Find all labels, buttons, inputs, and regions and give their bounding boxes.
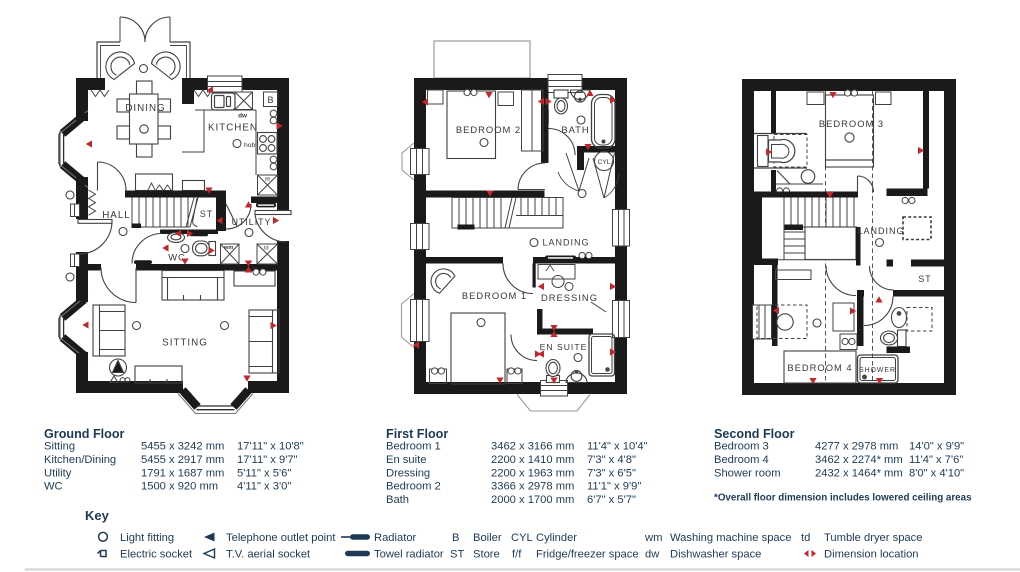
svg-text:4277 x 2978 mm: 4277 x 2978 mm [815,441,898,453]
svg-text:EN SUITE: EN SUITE [540,342,588,352]
svg-text:Bedroom 3: Bedroom 3 [714,441,769,453]
svg-text:Washing machine space: Washing machine space [670,532,791,544]
svg-text:ST: ST [450,549,464,561]
svg-text:KITCHEN: KITCHEN [208,123,258,134]
svg-text:dw: dw [645,549,660,561]
svg-text:14'0" x 9'9": 14'0" x 9'9" [909,441,964,453]
svg-text:Sitting: Sitting [44,441,75,453]
svg-text:f/f: f/f [512,549,522,561]
svg-text:En suite: En suite [386,454,426,466]
svg-text:f/f: f/f [265,177,270,183]
svg-text:td: td [264,246,269,252]
svg-text:BEDROOM 4: BEDROOM 4 [787,362,852,373]
svg-text:1791 x 1687 mm: 1791 x 1687 mm [141,467,224,479]
svg-text:Fridge/freezer space: Fridge/freezer space [536,549,639,561]
svg-text:CYL: CYL [598,159,611,166]
svg-text:7'3" x 4'8": 7'3" x 4'8" [587,454,636,466]
svg-text:SITTING: SITTING [162,338,208,349]
svg-text:Shower room: Shower room [714,467,781,479]
svg-text:Ground Floor: Ground Floor [44,427,125,441]
svg-text:ST: ST [200,209,213,219]
svg-text:B: B [452,532,459,544]
svg-text:Cylinder: Cylinder [536,532,577,544]
svg-text:BEDROOM 1: BEDROOM 1 [462,290,527,301]
svg-text:Towel radiator: Towel radiator [374,549,444,561]
svg-text:UTILITY: UTILITY [232,217,272,227]
svg-text:Dishwasher space: Dishwasher space [670,549,761,561]
svg-text:11'1" x 9'9": 11'1" x 9'9" [587,481,641,493]
svg-text:5'11" x 5'6": 5'11" x 5'6" [237,467,291,479]
svg-text:Bedroom 2: Bedroom 2 [386,481,441,493]
svg-text:Store: Store [473,549,500,561]
svg-text:8'0" x 4'10": 8'0" x 4'10" [909,467,964,479]
svg-text:2432 x 1464* mm: 2432 x 1464* mm [815,467,903,479]
svg-text:LANDING: LANDING [857,226,904,236]
svg-text:2000 x 1700 mm: 2000 x 1700 mm [491,494,574,506]
svg-text:7'3" x 6'5": 7'3" x 6'5" [587,467,636,479]
svg-text:Kitchen/Dining: Kitchen/Dining [44,454,116,466]
svg-text:wm: wm [223,245,233,251]
svg-text:ST: ST [918,274,931,284]
svg-text:B: B [267,95,273,105]
svg-text:Bedroom 1: Bedroom 1 [386,441,441,453]
svg-text:3462 x 3166 mm: 3462 x 3166 mm [491,441,574,453]
svg-text:BEDROOM 2: BEDROOM 2 [456,124,521,135]
svg-text:Tumble dryer space: Tumble dryer space [824,532,922,544]
svg-text:Electric socket: Electric socket [120,549,193,561]
svg-text:First Floor: First Floor [386,427,448,441]
svg-text:11'4" x 7'6": 11'4" x 7'6" [909,454,963,466]
svg-text:5455 x 3242 mm: 5455 x 3242 mm [141,441,224,453]
svg-text:1500 x 920 mm: 1500 x 920 mm [141,481,218,493]
svg-text:td: td [801,532,810,544]
svg-text:SHOWER: SHOWER [859,367,896,374]
svg-text:dw: dw [238,113,247,120]
svg-text:Bath: Bath [386,494,409,506]
svg-text:hob: hob [244,142,256,149]
svg-text:Telephone outlet point: Telephone outlet point [226,532,336,544]
svg-text:T.V. aerial socket: T.V. aerial socket [226,549,311,561]
svg-text:DINING: DINING [125,103,165,114]
svg-text:Key: Key [85,508,110,523]
svg-text:2200 x 1963 mm: 2200 x 1963 mm [491,467,574,479]
svg-text:Dimension location: Dimension location [824,549,919,561]
svg-text:Light fitting: Light fitting [120,532,174,544]
svg-text:11'4" x 10'4": 11'4" x 10'4" [587,441,648,453]
svg-text:5455 x 2917 mm: 5455 x 2917 mm [141,454,224,466]
svg-text:3366 x 2978 mm: 3366 x 2978 mm [491,481,574,493]
svg-text:*Overall floor dimension inclu: *Overall floor dimension includes lowere… [714,493,972,504]
svg-text:2200 x 1410 mm: 2200 x 1410 mm [491,454,574,466]
svg-text:BATH: BATH [561,124,589,135]
svg-text:Boiler: Boiler [473,532,502,544]
svg-text:4'11" x 3'0": 4'11" x 3'0" [237,481,291,493]
svg-text:Dressing: Dressing [386,467,430,479]
svg-text:17'11" x 9'7": 17'11" x 9'7" [237,454,298,466]
svg-text:wm: wm [644,532,662,544]
svg-text:Radiator: Radiator [374,532,417,544]
svg-text:Second Floor: Second Floor [714,427,795,441]
svg-text:17'11" x 10'8": 17'11" x 10'8" [237,441,304,453]
svg-text:Utility: Utility [44,467,72,479]
svg-text:WC: WC [44,481,63,493]
svg-text:DRESSING: DRESSING [541,292,598,303]
svg-text:BEDROOM 3: BEDROOM 3 [819,118,884,129]
svg-text:LANDING: LANDING [542,238,589,248]
svg-text:3462 x 2274* mm: 3462 x 2274* mm [815,454,903,466]
svg-text:6'7" x 5'7": 6'7" x 5'7" [587,494,636,506]
svg-text:CYL: CYL [511,532,533,544]
svg-text:Bedroom 4: Bedroom 4 [714,454,769,466]
